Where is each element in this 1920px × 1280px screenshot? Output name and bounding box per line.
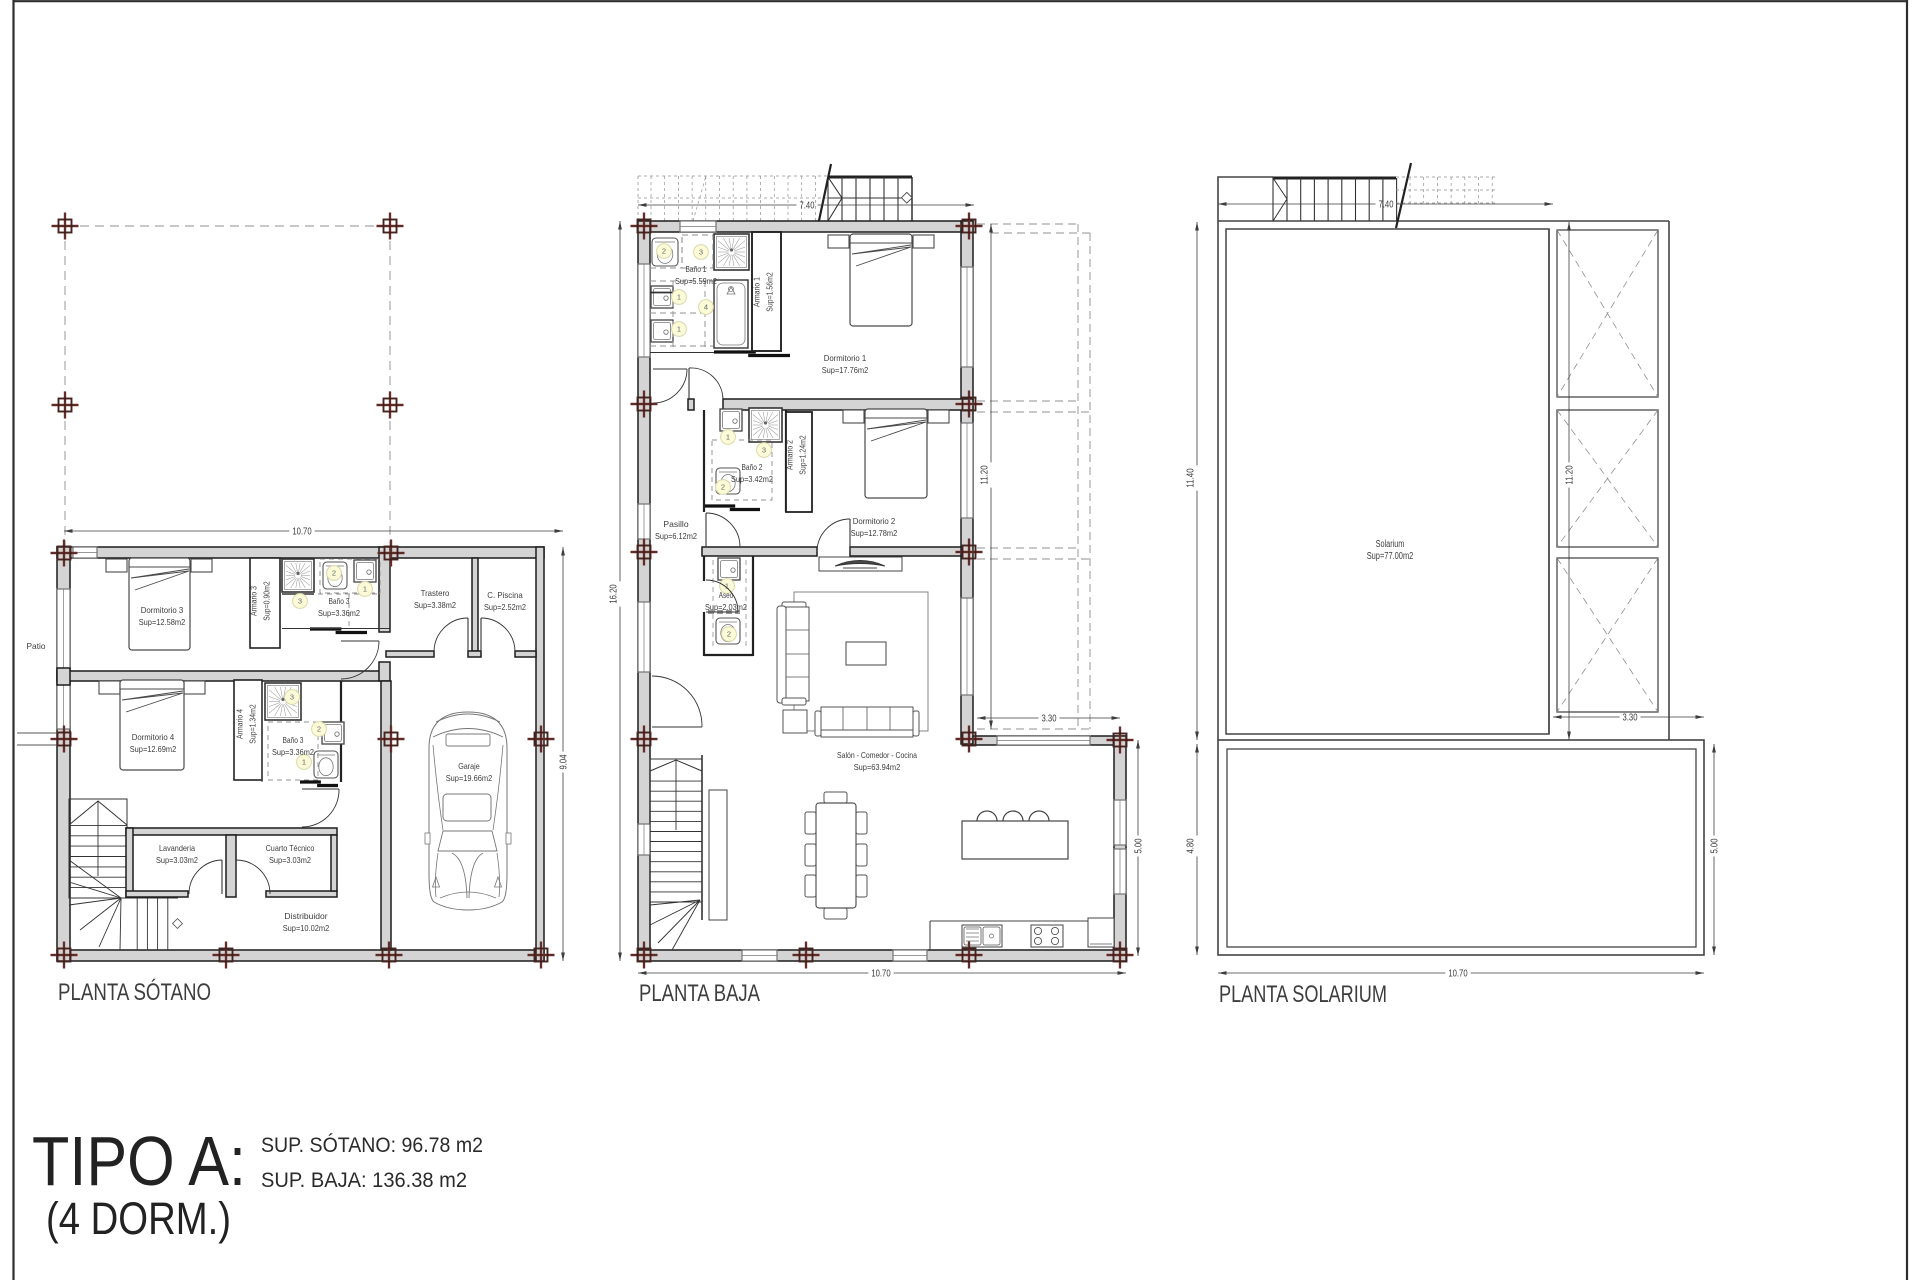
svg-text:Sup=2.03m2: Sup=2.03m2 [705, 602, 747, 612]
svg-text:7.40: 7.40 [1379, 199, 1394, 210]
svg-text:1: 1 [302, 758, 306, 767]
svg-text:Sup=3.03m2: Sup=3.03m2 [156, 855, 198, 865]
svg-text:2: 2 [332, 569, 336, 578]
svg-text:3.30: 3.30 [1623, 712, 1638, 723]
svg-text:Cuarto Técnico: Cuarto Técnico [266, 843, 315, 853]
svg-text:3.30: 3.30 [1042, 713, 1057, 724]
svg-text:Lavanderia: Lavanderia [159, 843, 195, 853]
svg-text:Dormitorio 4: Dormitorio 4 [132, 732, 175, 742]
svg-text:Sup=10.02m2: Sup=10.02m2 [283, 923, 330, 933]
svg-text:16.20: 16.20 [609, 584, 620, 604]
svg-text:C. Piscina: C. Piscina [487, 590, 523, 600]
svg-text:Sup=1.34m2: Sup=1.34m2 [249, 704, 258, 744]
svg-text:Solarium: Solarium [1376, 539, 1405, 550]
svg-text:SUP. SÓTANO: 96.78 m2: SUP. SÓTANO: 96.78 m2 [261, 1134, 483, 1157]
svg-text:Sup=77.00m2: Sup=77.00m2 [1367, 551, 1414, 562]
svg-text:PLANTA BAJA: PLANTA BAJA [639, 980, 760, 1007]
svg-text:5.00: 5.00 [1133, 838, 1144, 853]
svg-text:Trastero: Trastero [421, 588, 450, 598]
svg-text:Garaje: Garaje [458, 761, 480, 771]
svg-text:1: 1 [677, 325, 681, 334]
svg-text:Armario 2: Armario 2 [786, 440, 795, 470]
svg-text:PLANTA SOLARIUM: PLANTA SOLARIUM [1219, 981, 1387, 1008]
svg-text:7.40: 7.40 [800, 200, 815, 211]
svg-text:SUP. BAJA: 136.38 m2: SUP. BAJA: 136.38 m2 [261, 1169, 467, 1192]
svg-text:Baño 3: Baño 3 [283, 735, 304, 745]
svg-text:3: 3 [699, 248, 703, 257]
svg-text:2: 2 [317, 725, 321, 734]
svg-text:Sup=3.38m2: Sup=3.38m2 [414, 600, 456, 610]
svg-text:Sup=12.78m2: Sup=12.78m2 [851, 528, 898, 538]
svg-text:Sup=17.76m2: Sup=17.76m2 [822, 365, 869, 375]
svg-text:4: 4 [704, 303, 708, 312]
svg-text:TIPO A:: TIPO A: [32, 1122, 246, 1200]
svg-text:1: 1 [363, 585, 367, 594]
svg-text:10.70: 10.70 [1448, 968, 1468, 979]
svg-text:Pasillo: Pasillo [663, 519, 688, 529]
svg-text:Dormitorio 2: Dormitorio 2 [853, 516, 896, 526]
svg-text:4.80: 4.80 [1186, 838, 1197, 853]
svg-text:(4 DORM.): (4 DORM.) [46, 1193, 231, 1244]
svg-text:Dormitorio 1: Dormitorio 1 [824, 353, 867, 363]
svg-text:Sup=63.94m2: Sup=63.94m2 [854, 762, 901, 772]
svg-text:Sup=5.59m2: Sup=5.59m2 [675, 276, 717, 286]
svg-text:Sup=19.66m2: Sup=19.66m2 [446, 773, 493, 783]
svg-text:Sup=1.56m2: Sup=1.56m2 [766, 272, 775, 312]
svg-text:2: 2 [721, 483, 725, 492]
svg-text:2: 2 [662, 247, 666, 256]
svg-text:Sup=12.69m2: Sup=12.69m2 [130, 744, 177, 754]
svg-text:1: 1 [677, 293, 681, 302]
svg-text:Baño 1: Baño 1 [686, 264, 707, 274]
svg-text:Baño 2: Baño 2 [742, 462, 763, 472]
svg-text:Sup=3.36m2: Sup=3.36m2 [318, 608, 360, 618]
svg-text:Armario 3: Armario 3 [250, 586, 259, 616]
svg-text:10.70: 10.70 [871, 968, 891, 979]
svg-text:Sup=2.52m2: Sup=2.52m2 [484, 602, 526, 612]
svg-text:9.04: 9.04 [558, 754, 569, 769]
svg-text:Armario 4: Armario 4 [236, 709, 245, 739]
svg-text:3: 3 [290, 693, 294, 702]
svg-text:Sup=12.58m2: Sup=12.58m2 [139, 617, 186, 627]
svg-text:Sup=6.12m2: Sup=6.12m2 [655, 531, 697, 541]
svg-text:11.20: 11.20 [980, 465, 991, 485]
svg-text:Baño 3: Baño 3 [329, 596, 350, 606]
svg-text:Dormitorio 3: Dormitorio 3 [141, 605, 184, 615]
svg-text:2: 2 [727, 630, 731, 639]
svg-text:10.70: 10.70 [292, 526, 312, 537]
svg-text:PLANTA SÓTANO: PLANTA SÓTANO [58, 979, 211, 1006]
svg-text:3: 3 [762, 446, 766, 455]
svg-text:11.40: 11.40 [1186, 468, 1197, 488]
svg-text:Sup=3.03m2: Sup=3.03m2 [269, 855, 311, 865]
svg-text:Patio: Patio [27, 641, 46, 651]
svg-text:1: 1 [726, 433, 730, 442]
svg-text:Sup=3.42m2: Sup=3.42m2 [731, 474, 773, 484]
svg-text:Salón - Comedor - Cocina: Salón - Comedor - Cocina [837, 750, 917, 760]
svg-text:Armario 1: Armario 1 [753, 277, 762, 307]
svg-text:Sup=1.24m2: Sup=1.24m2 [799, 435, 808, 475]
svg-text:Sup=3.36m2: Sup=3.36m2 [272, 747, 314, 757]
svg-text:11.20: 11.20 [1564, 465, 1575, 485]
svg-text:Sup=0.90m2: Sup=0.90m2 [263, 581, 272, 621]
svg-text:3: 3 [298, 597, 302, 606]
svg-text:Distribuidor: Distribuidor [284, 911, 327, 921]
svg-text:5.00: 5.00 [1709, 838, 1720, 853]
